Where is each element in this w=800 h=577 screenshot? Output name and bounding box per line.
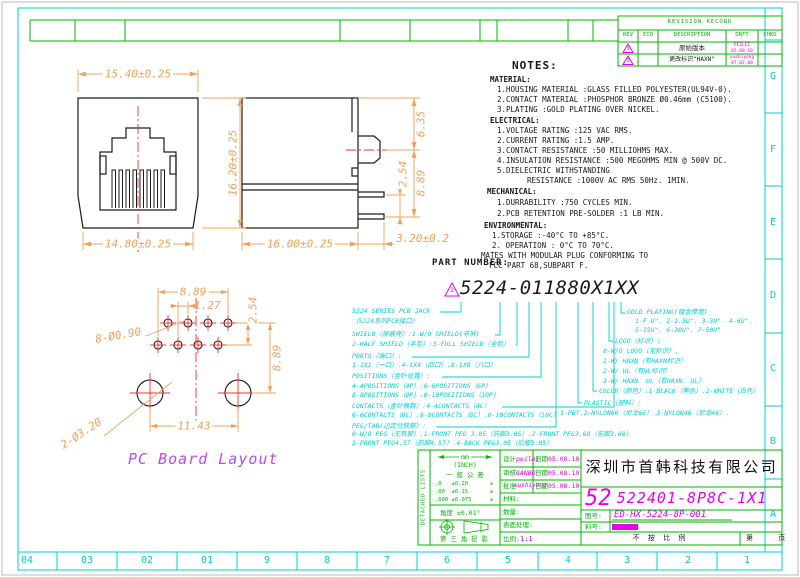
revision-table-title: REVISION RECORD — [668, 20, 733, 26]
dim-pcb-mount-span: 11.43 — [175, 421, 212, 432]
tolerance-units-inch: (INCH) — [453, 462, 476, 469]
notes-section-title: ENVIRONMENTAL: — [484, 222, 547, 230]
zone-label-bottom: 5 — [505, 556, 511, 566]
tolerance-general-label: 一 般 公 差 — [446, 472, 484, 479]
no-scale-note: 不 按 比 例 — [633, 535, 688, 542]
size-code: 52 — [585, 488, 612, 510]
dim-side-pin-row: 8.89 — [416, 168, 427, 199]
decoder-line: 3-FRONT PEG4.57（前脚4.57）.4-BACK PEG3.05（后… — [352, 440, 553, 447]
notes-line: 2.PCB RETENTION PRE-SOLDER :1 LB MIN. — [497, 210, 664, 218]
decoder-line: 4-4POSITIONS（4P）:6-6POSITIONS（6P） — [352, 383, 492, 390]
zone-label-bottom: 9 — [264, 556, 270, 566]
decoder-line: PEG/TAB(边定位铁脚）: — [352, 423, 426, 430]
decoder-line: 8-8POSITIONS（8P）:0-10POSITIONS（10P） — [352, 392, 499, 399]
revision-date: 07.02.08 — [731, 62, 753, 67]
zone-label-bottom: 3 — [624, 556, 630, 566]
revision-col-header: ECO — [643, 33, 653, 39]
zone-label-bottom: 04 — [21, 556, 33, 566]
tolerance-pm: ± — [490, 482, 493, 488]
decoder-line: COLOR（颜色）:1-BLACK（黑色）.2-WHITE（白色） — [599, 388, 759, 395]
part-number-value: 5224-011880X1XX — [460, 279, 639, 298]
notes-line: 1.DURRABILITY :750 CYCLES MIN. — [497, 199, 632, 207]
zone-label-right: C — [770, 364, 776, 374]
notes-heading: NOTES: — [512, 60, 558, 71]
tolerance-row: .0 ±0.20 — [435, 482, 468, 488]
dim-pcb-span-right: 8.89 — [272, 343, 283, 374]
side-view-outline — [242, 98, 384, 228]
sheet-label: 第 页 — [746, 535, 785, 542]
notes-line: 2.CURRENT RATING :1.5 AMP. — [497, 137, 614, 145]
zone-label-bottom: 7 — [384, 556, 390, 566]
decoder-line: PORTS（端口）: — [352, 353, 401, 360]
dim-pcb-row-gap: 2.54 — [248, 295, 259, 326]
decoder-line: 1-W/ HAXN（有HAXN标识） — [603, 358, 686, 365]
zone-label-bottom: 01 — [201, 556, 213, 566]
revision-mark: 1 — [626, 47, 629, 52]
zone-label-right: D — [770, 291, 776, 301]
tolerance-units-mm: mm — [459, 454, 471, 461]
drawing-no-value: ED-HX-5224-8P-001 — [614, 511, 706, 520]
notes-section-title: MECHANICAL: — [487, 188, 537, 196]
company-name: 深圳市首韩科技有限公司 — [586, 460, 779, 475]
decoder-line: PLASTIC（塑料）: — [584, 400, 641, 407]
tb-date-label: 日期 — [535, 456, 548, 463]
decoder-line: 6-6CONTACTS（6C）.8-8CONTACTS（8C）.0-10CONT… — [352, 412, 559, 419]
part-number-label: PART NUMBER: — [432, 259, 509, 268]
zone-label-bottom: 1 — [744, 556, 750, 566]
tolerance-angle: 角度 ±0.01° — [440, 510, 480, 517]
notes-section-title: MATERIAL: — [490, 76, 531, 84]
tb-date-label: 日期 — [535, 470, 548, 477]
decoder-line: （5224系列PCB接口） — [352, 318, 418, 325]
notes-section-title: ELECTRICAL: — [490, 117, 540, 125]
decoder-line: 2-HALF SHIELD（半包）:3-FULL SHIELD（全包） — [352, 341, 510, 348]
material-no-label: 料号: — [585, 524, 602, 531]
projection-label: 第 三 角 投 影 — [440, 536, 488, 543]
decoder-line: GOLD PLATING(镀金厚度) — [627, 309, 708, 316]
material-no-redacted — [612, 524, 638, 530]
tolerance-row: .00 ±0.15 — [435, 490, 468, 496]
zone-label-right: G — [770, 72, 776, 82]
part-number-rev-mark: 2 — [450, 288, 454, 294]
dim-side-depth: 16.00±0.25 — [265, 239, 335, 250]
dim-pcb-stagger: 1.27 — [194, 300, 221, 311]
drawing-no-label: 图号: — [585, 513, 602, 520]
zone-label-right: A — [770, 510, 776, 520]
title-part-number: 522401-8P8C-1X1 — [617, 491, 767, 506]
dim-front-width-top: 15.40±0.25 — [103, 69, 173, 80]
notes-line: RESISTANCE :1000V AC RMS 50Hz. 1MIN. — [527, 177, 690, 185]
tb-row-label: 表面处理: — [503, 522, 533, 529]
decoder-line: 1-1X1（一口）.4-1X4（四口）.8-1X8（八口） — [352, 362, 497, 369]
notes-line: 5.DIELECTRIC WITHSTANDING — [497, 167, 610, 175]
decoder-line: 0-W/O PEG（无铁脚）.1-FRONT PEG 3.05（前脚3.05）.… — [352, 431, 632, 438]
zone-label-right: E — [770, 218, 776, 228]
tb-date-label: 日期 — [535, 483, 548, 490]
notes-line: 3.CONTACT RESISTANCE :50 MILLIOHMS MAX. — [497, 147, 673, 155]
notes-line: 2. OPERATION : 0°C TO 70°C. — [492, 242, 614, 250]
tolerance-pm: ± — [490, 490, 493, 496]
dim-side-pin-length: 3.20±0.2 — [396, 233, 449, 244]
decoder-line: 5-15U". 6-30U". 7-50U" — [635, 327, 721, 334]
dim-side-latch: 6.35 — [416, 109, 427, 140]
tb-row-label: 审核 — [503, 470, 516, 477]
notes-line: 1.HOUSING MATERIAL :GLASS FILLED POLYEST… — [497, 86, 732, 94]
dim-side-pin-pitch: 2.54 — [398, 159, 409, 190]
tb-scale-value: 1:1 — [520, 536, 533, 543]
zone-label-bottom: 6 — [444, 556, 450, 566]
decoder-line: 3-W/ HAXN. UL（有HAXN. UL） — [603, 378, 705, 385]
revision-strip — [30, 20, 618, 41]
tb-row-value: GANBO — [516, 470, 536, 477]
notes-line: 2.CONTACT MATERIAL :PHOSPHOR BRONZE Ø0.4… — [497, 96, 732, 104]
tb-date-value: 05.08.10 — [548, 483, 579, 490]
zone-label-right: B — [770, 437, 776, 447]
notes-line: 1.VOLTAGE RATING :125 VAC RMS. — [497, 127, 632, 135]
zone-label-bottom: 4 — [565, 556, 571, 566]
revision-col-header: DRFT — [735, 33, 748, 39]
dim-front-width-bottom: 14.80±0.25 — [103, 239, 173, 250]
decoder-line: SHIELD（屏蔽壳）:1-W/O SHIELD(非屏) — [352, 331, 480, 338]
notes-line: 4.INSULATION RESISTANCE :500 MEGOHMS MIN… — [497, 157, 727, 165]
revision-description: 更改标识"HAXN" — [669, 57, 715, 63]
tb-row-label: 设计 — [503, 456, 516, 463]
drawing-sheet: 04 03 02 01 9 8 7 6 5 4 3 2 1 G F E D C … — [0, 0, 800, 577]
notes-line: 3.PLATING :GOLD PLATING OVER NICKEL. — [497, 106, 660, 114]
notes-line: 1.STORAGE :-40°C TO +85°C. — [492, 232, 609, 240]
revision-mark: 2 — [626, 59, 629, 64]
dim-pcb-span-top: 8.89 — [178, 287, 209, 298]
tb-date-value: 05.08.10 — [548, 470, 579, 477]
title-block-side-note: DETACHED LISTS — [422, 469, 427, 525]
pcb-layout-caption: PC Board Layout — [128, 452, 278, 467]
revision-col-header: CHKD — [763, 33, 776, 39]
decoder-line: 2-W/ UL（有UL标识） — [603, 368, 671, 375]
zone-label-bottom: 03 — [81, 556, 93, 566]
decoder-line: 5224 SERIES PCB JACK — [352, 308, 430, 315]
zone-label-bottom: 2 — [685, 556, 691, 566]
decoder-line: 1-PBT.2-NYLON66（尼龙66）.3-NYLON46（尼龙46）. — [560, 410, 729, 417]
revision-col-header: DESCRIPTION — [674, 33, 710, 39]
decoder-line: POSITIONS（金针位置）: — [352, 373, 430, 380]
tb-row-label: 比例: — [503, 536, 520, 543]
decoder-line: 0-W/O LOGO（无标识）. — [603, 348, 679, 355]
revision-col-header: REV — [623, 33, 633, 39]
tb-date-value: 05.08.10 — [548, 456, 579, 463]
zone-label-bottom: 8 — [324, 556, 330, 566]
tolerance-pm: ± — [490, 498, 493, 504]
tb-row-label: 材料: — [503, 496, 520, 503]
revision-date: 05.08.10 — [731, 50, 753, 55]
decoder-line: CONTACTS（金针根数）:4-4CONTACTS（4C） — [352, 403, 490, 410]
decoder-line: LOGO（标识）: — [615, 338, 661, 345]
zone-label-right: F — [770, 145, 776, 155]
decoder-line: 1-F U". 2-1.5U". 3-3U". 4-6U". — [635, 318, 752, 325]
revision-description: 原始版本 — [679, 45, 705, 52]
dim-front-height: 16.20±0.25 — [228, 128, 239, 198]
tolerance-row: .000 ±0.075 — [435, 498, 471, 504]
tb-row-label: 数量: — [503, 509, 520, 516]
zone-label-bottom: 02 — [141, 556, 153, 566]
